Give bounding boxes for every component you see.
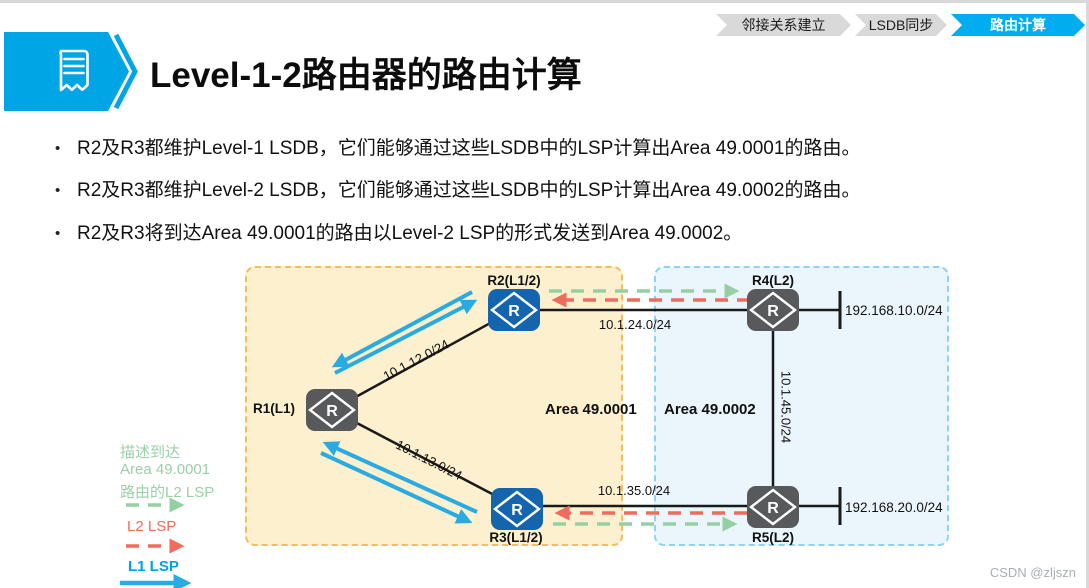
link-label-10-1-24: 10.1.24.0/24 [599,317,671,332]
slide: 邻接关系建立 LSDB同步 路由计算 Level-1-2路由器的路由计算 •R2… [0,0,1089,588]
page-title: Level-1-2路由器的路由计算 [150,47,582,98]
stub-label-192-168-20: 192.168.20.0/24 [845,500,943,515]
bullet-dot: • [55,182,77,199]
tab-route-calc[interactable]: 路由计算 [951,14,1085,36]
router-icon: R [491,488,543,530]
header-banner [0,28,150,118]
router-icon: R [747,486,799,528]
legend-area-route-line2: Area 49.0001 [120,461,210,478]
router-r4[interactable]: R [747,289,799,331]
bullet-item: •R2及R3都维护Level-2 LSDB，它们能够通过这些LSDB中的LSP计… [55,175,1035,202]
router-label-r2: R2(L1/2) [487,273,540,288]
router-r3[interactable]: R [491,488,543,530]
svg-text:R: R [511,502,523,519]
router-r5[interactable]: R [747,486,799,528]
router-icon: R [747,289,799,331]
tab-adjacency[interactable]: 邻接关系建立 [716,14,851,36]
link-label-10-1-35: 10.1.35.0/24 [598,483,670,498]
area-label-49-0002: Area 49.0002 [664,401,756,418]
bullet-item: •R2及R3都维护Level-1 LSDB，它们能够通过这些LSDB中的LSP计… [55,133,1035,160]
legend-l1-lsp-label: L1 LSP [128,558,179,575]
router-icon: R [306,389,358,431]
svg-text:R: R [767,500,779,517]
svg-text:R: R [326,403,338,420]
svg-text:R: R [767,303,779,320]
router-r2[interactable]: R [488,289,540,331]
legend-l2-lsp-label: L2 LSP [127,518,176,535]
banner-shape [4,32,129,111]
router-icon: R [488,289,540,331]
svg-text:R: R [508,303,520,320]
watermark: CSDN @zljszn [990,565,1076,580]
router-label-r3: R3(L1/2) [489,530,542,545]
legend-area-route-line3: 路由的L2 LSP [120,481,214,502]
link-label-10-1-45: 10.1.45.0/24 [779,371,794,443]
bullet-text: R2及R3将到达Area 49.0001的路由以Level-2 LSP的形式发送… [77,223,742,244]
bullet-text: R2及R3都维护Level-2 LSDB，它们能够通过这些LSDB中的LSP计算… [77,180,860,201]
router-r1[interactable]: R [306,389,358,431]
area-label-49-0001: Area 49.0001 [545,401,637,418]
legend-area-route-line1: 描述到达 [120,441,180,462]
tab-lsdb-sync[interactable]: LSDB同步 [855,14,947,36]
router-label-r5: R5(L2) [752,530,794,545]
router-label-r1: R1(L1) [253,401,295,416]
bullet-dot: • [55,225,77,242]
stub-label-192-168-10: 192.168.10.0/24 [845,303,943,318]
bullet-dot: • [55,140,77,157]
bullet-text: R2及R3都维护Level-1 LSDB，它们能够通过这些LSDB中的LSP计算… [77,138,860,159]
bullet-item: •R2及R3将到达Area 49.0001的路由以Level-2 LSP的形式发… [55,218,1035,245]
router-label-r4: R4(L2) [752,273,794,288]
